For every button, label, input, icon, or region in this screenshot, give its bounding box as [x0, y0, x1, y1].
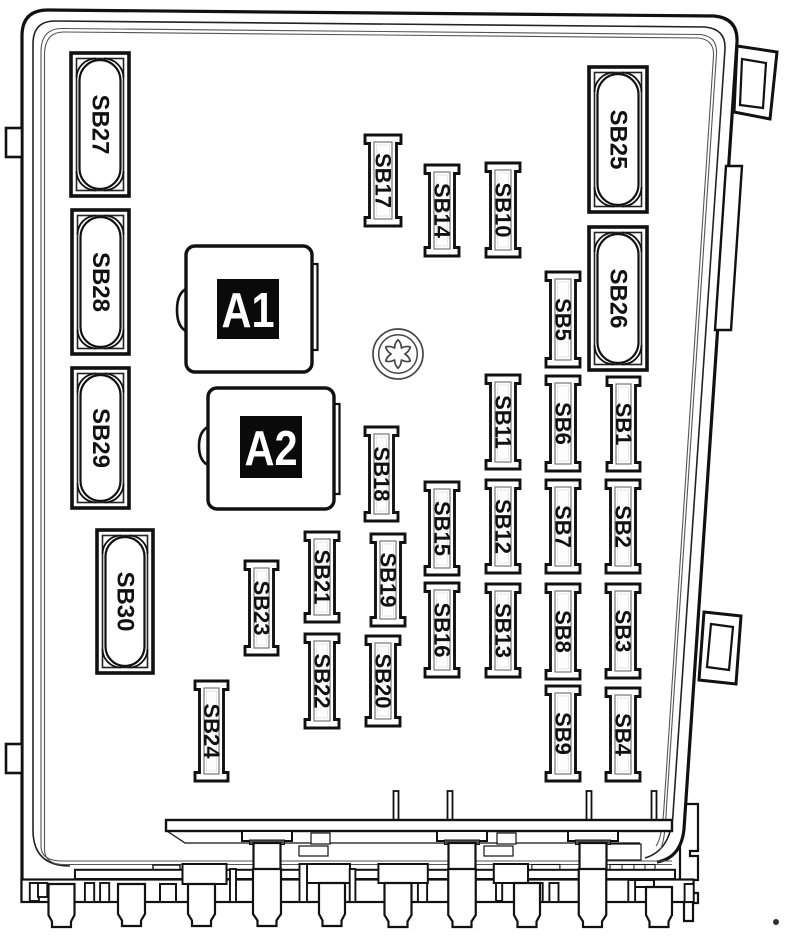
svg-text:SB12: SB12: [491, 499, 516, 554]
svg-text:SB11: SB11: [491, 395, 516, 449]
svg-text:SB29: SB29: [87, 408, 114, 468]
svg-text:SB28: SB28: [87, 252, 114, 312]
svg-text:SB30: SB30: [112, 571, 139, 631]
svg-text:SB26: SB26: [605, 268, 632, 328]
svg-text:SB6: SB6: [551, 402, 576, 445]
svg-text:SB18: SB18: [369, 446, 394, 501]
svg-text:SB13: SB13: [491, 603, 516, 658]
svg-text:SB16: SB16: [430, 602, 455, 657]
svg-text:SB15: SB15: [430, 501, 455, 556]
svg-text:SB14: SB14: [430, 183, 455, 239]
svg-text:SB7: SB7: [551, 505, 576, 548]
svg-text:A1: A1: [222, 284, 275, 338]
svg-text:SB24: SB24: [199, 703, 224, 759]
svg-text:SB10: SB10: [491, 182, 516, 237]
svg-text:SB9: SB9: [551, 712, 576, 755]
svg-text:SB5: SB5: [551, 298, 576, 341]
svg-text:SB4: SB4: [611, 713, 636, 757]
svg-text:SB27: SB27: [87, 94, 114, 154]
svg-text:SB22: SB22: [310, 653, 335, 708]
svg-text:SB23: SB23: [249, 580, 274, 635]
svg-text:SB21: SB21: [310, 549, 335, 604]
svg-text:SB25: SB25: [605, 109, 632, 169]
svg-text:SB8: SB8: [551, 610, 576, 653]
svg-text:SB1: SB1: [611, 403, 636, 446]
svg-text:SB3: SB3: [611, 610, 636, 653]
svg-text:SB17: SB17: [371, 153, 396, 208]
svg-text:SB20: SB20: [371, 653, 396, 708]
svg-text:SB2: SB2: [611, 505, 636, 548]
svg-text:A2: A2: [245, 422, 298, 476]
svg-text:SB19: SB19: [376, 552, 401, 607]
